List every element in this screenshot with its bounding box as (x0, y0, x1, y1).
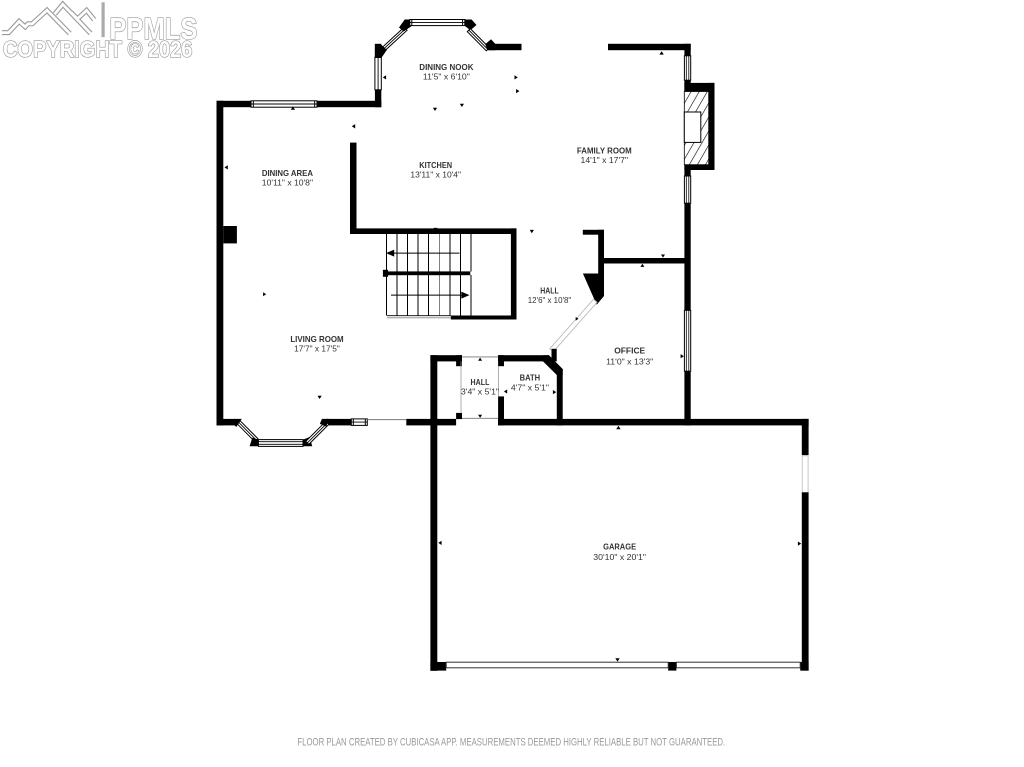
svg-text:OFFICE: OFFICE (614, 346, 645, 356)
svg-text:GARAGE: GARAGE (603, 542, 636, 552)
svg-text:10'11" x 10'8": 10'11" x 10'8" (262, 178, 313, 188)
svg-text:BATH: BATH (520, 373, 541, 383)
svg-text:11'0" x 13'3": 11'0" x 13'3" (606, 356, 653, 366)
svg-text:30'10" x 20'1": 30'10" x 20'1" (593, 552, 646, 562)
svg-text:12'6" x 10'8": 12'6" x 10'8" (528, 295, 572, 305)
svg-text:3'4" x 5'1": 3'4" x 5'1" (461, 387, 499, 397)
svg-text:FLOOR PLAN CREATED BY CUBICASA: FLOOR PLAN CREATED BY CUBICASA APP. MEAS… (297, 737, 725, 749)
svg-text:KITCHEN: KITCHEN (419, 160, 452, 170)
svg-text:14'1" x 17'7": 14'1" x 17'7" (581, 155, 629, 165)
svg-text:HALL: HALL (471, 377, 490, 387)
svg-text:17'7" x 17'5": 17'7" x 17'5" (294, 344, 340, 354)
svg-text:11'5" x 6'10": 11'5" x 6'10" (423, 72, 470, 82)
svg-text:LIVING ROOM: LIVING ROOM (290, 334, 343, 344)
svg-text:DINING NOOK: DINING NOOK (419, 62, 474, 72)
svg-text:COPYRIGHT © 2026: COPYRIGHT © 2026 (3, 36, 193, 62)
svg-text:13'11" x 10'4": 13'11" x 10'4" (410, 170, 461, 180)
svg-text:4'7" x 5'1": 4'7" x 5'1" (511, 382, 549, 392)
svg-text:FAMILY ROOM: FAMILY ROOM (577, 146, 632, 156)
svg-text:HALL: HALL (540, 286, 559, 296)
svg-text:DINING AREA: DINING AREA (262, 168, 313, 178)
